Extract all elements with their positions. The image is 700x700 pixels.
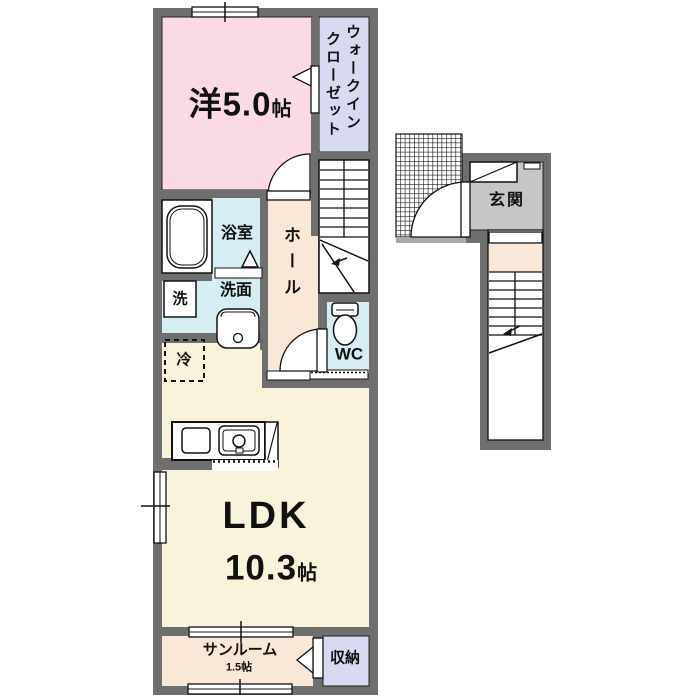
wall-vent (524, 163, 540, 169)
ldk-size: 10.3 (225, 551, 297, 586)
western-room-label: 洋5.0帖 (189, 88, 292, 121)
walk-in-closet-label-line1: ウォークイン (345, 24, 360, 132)
porch-edge (396, 237, 466, 243)
indoor-stairs (319, 160, 369, 293)
sunroom-label: サンルーム (203, 643, 278, 658)
entrance-door-leaf (461, 182, 470, 237)
wc-label: WC (335, 346, 363, 363)
wc-door-leaf (317, 329, 327, 372)
bathroom-label: 浴室 (221, 226, 253, 242)
floor-plan: 洋5.0帖 ウォークイン クローゼット 浴室 洗 洗面 ホール WC 冷 LDK… (0, 0, 700, 700)
refrigerator-label: 冷 (176, 353, 191, 368)
washroom-label: 洗面 (220, 283, 252, 299)
western-room-unit: 帖 (271, 100, 291, 120)
toilet-icon (332, 303, 358, 345)
sunroom-size-label: 1.5帖 (226, 663, 252, 674)
storage-door-leaf (313, 638, 323, 678)
storage-label: 収納 (330, 651, 360, 666)
entrance-step (489, 232, 542, 243)
stove-icon (182, 428, 210, 453)
western-room-size: 洋5.0 (189, 88, 272, 121)
closet-door-leaf (311, 66, 319, 113)
hall-ldk-threshold (267, 371, 310, 380)
bathtub-icon (167, 206, 207, 268)
ldk-size-label: 10.3帖 (225, 551, 317, 586)
entrance-label: 玄関 (489, 193, 525, 209)
ldk-label: LDK (222, 497, 309, 535)
western-room-door-leaf (267, 191, 310, 200)
ldk-unit: 帖 (297, 564, 317, 584)
bath-threshold (215, 268, 262, 278)
stair-landing (489, 244, 542, 272)
walk-in-closet-label-line2: クローゼット (325, 31, 340, 139)
hall-label: ホール (282, 226, 299, 304)
washer-label: 洗 (172, 292, 187, 307)
outdoor-stairs (488, 230, 543, 440)
